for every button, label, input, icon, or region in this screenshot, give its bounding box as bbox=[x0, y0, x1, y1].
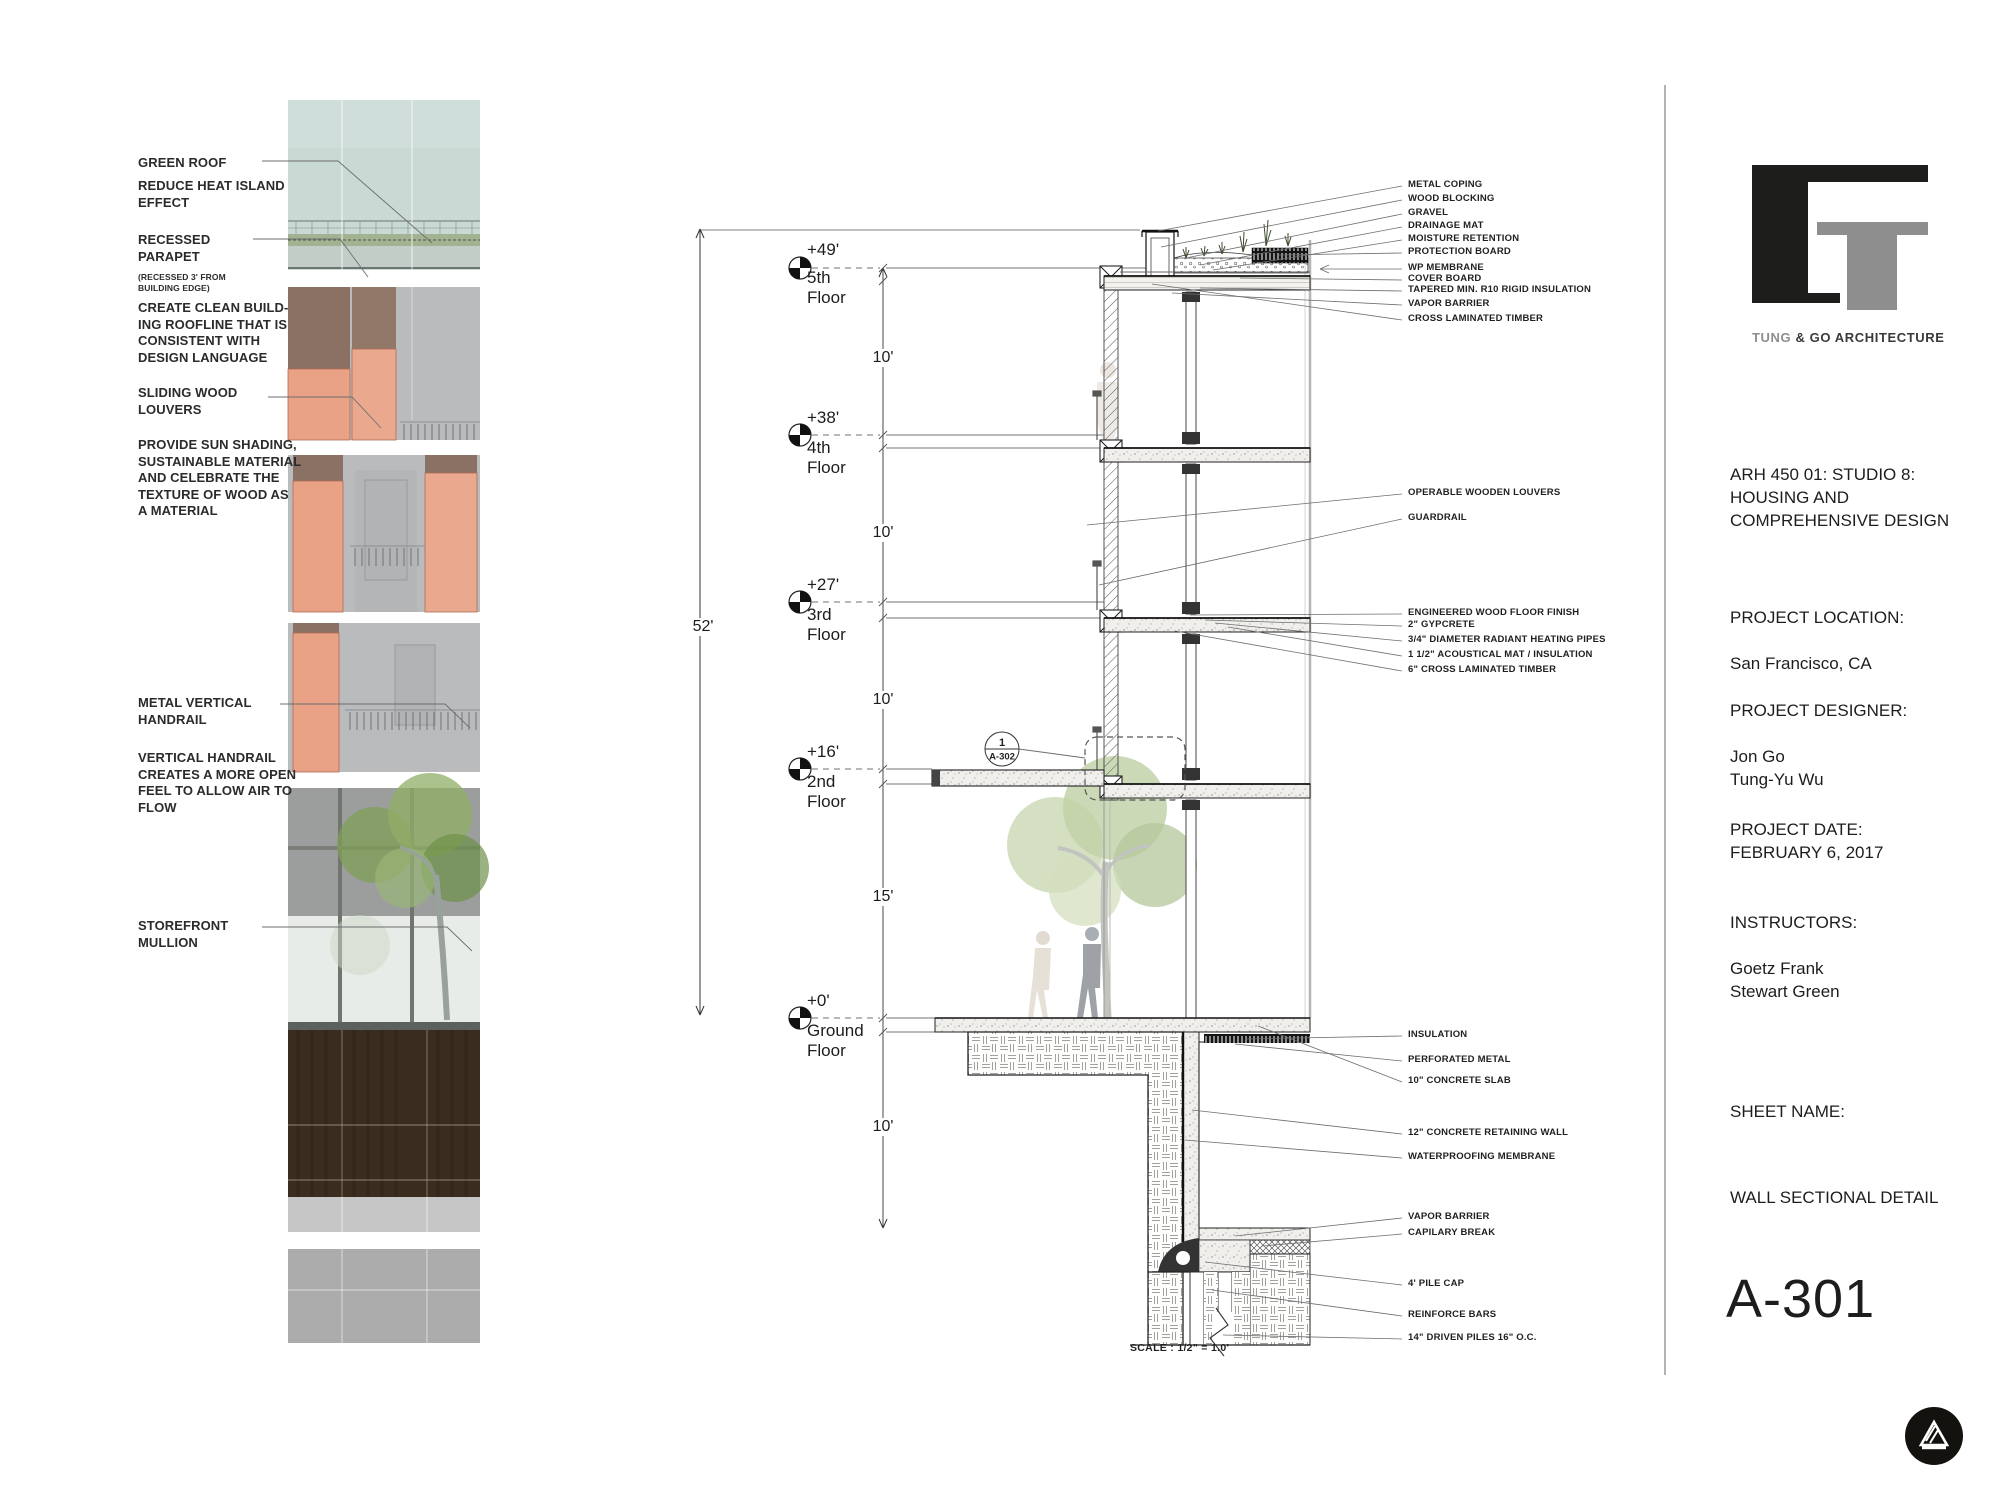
level-elev-4th: +38' bbox=[807, 408, 839, 428]
callout-vapor-barrier-roof: VAPOR BARRIER bbox=[1408, 298, 1490, 309]
earth-mass bbox=[968, 1032, 1183, 1345]
level-name-ground: Ground Floor bbox=[807, 1021, 864, 1061]
callout-protection-board: PROTECTION BOARD bbox=[1408, 246, 1511, 257]
dimension-lines bbox=[696, 229, 1146, 1228]
level-elev-3rd: +27' bbox=[807, 575, 839, 595]
firm-name: TUNG & GO ARCHITECTURE bbox=[1752, 330, 1945, 345]
callout-retaining-wall: 12" CONCRETE RETAINING WALL bbox=[1408, 1127, 1568, 1138]
strip-band-upper-facade bbox=[288, 287, 480, 440]
sheet-name-value: WALL SECTIONAL DETAIL bbox=[1730, 1186, 1938, 1209]
level-elev-2nd: +16' bbox=[807, 742, 839, 762]
callout-wp-membrane: WP MEMBRANE bbox=[1408, 262, 1484, 273]
note-sliding-louvers: SLIDING WOOD LOUVERS bbox=[138, 385, 310, 418]
note-heat-island: REDUCE HEAT ISLAND EFFECT bbox=[138, 178, 310, 211]
note-sun-shading: PROVIDE SUN SHADING, SUSTAINABLE MATERIA… bbox=[138, 437, 310, 520]
callout-waterproofing: WATERPROOFING MEMBRANE bbox=[1408, 1151, 1555, 1162]
callout-moisture-retention: MOISTURE RETENTION bbox=[1408, 233, 1519, 244]
level-name-2nd: 2nd Floor bbox=[807, 772, 846, 812]
callout-metal-coping: METAL COPING bbox=[1408, 179, 1482, 190]
callout-capillary-break: CAPILARY BREAK bbox=[1408, 1227, 1495, 1238]
logo-gray-t-stem bbox=[1847, 235, 1897, 310]
callout-driven-piles: 14" DRIVEN PILES 16" O.C. bbox=[1408, 1332, 1537, 1343]
note-recessed-parapet: RECESSED PARAPET bbox=[138, 232, 310, 265]
callout-wood-blocking: WOOD BLOCKING bbox=[1408, 193, 1495, 204]
callout-gypcrete: 2" GYPCRETE bbox=[1408, 619, 1475, 630]
strip-band-dark-wood bbox=[288, 1030, 480, 1197]
interior-columns bbox=[1182, 292, 1200, 1018]
note-green-roof: GREEN ROOF bbox=[138, 155, 310, 172]
note-clean-roofline: CREATE CLEAN BUILD- ING ROOFLINE THAT IS… bbox=[138, 300, 310, 366]
scale-note: SCALE : 1/2" = 1.0' bbox=[1130, 1342, 1229, 1354]
level-name-5th: 5th Floor bbox=[807, 268, 846, 308]
callout-radiant-pipes: 3/4" DIAMETER RADIANT HEATING PIPES bbox=[1408, 634, 1606, 645]
callout-gravel: GRAVEL bbox=[1408, 207, 1448, 218]
logo-gray-t-bar bbox=[1817, 222, 1928, 235]
callout-reinforce-bars: REINFORCE BARS bbox=[1408, 1309, 1496, 1320]
retaining-wall bbox=[1183, 1032, 1199, 1272]
level-elev-ground: +0' bbox=[807, 991, 830, 1011]
sheet-name-label: SHEET NAME: bbox=[1730, 1100, 1845, 1123]
project-location-label: PROJECT LOCATION: bbox=[1730, 606, 1904, 629]
dim-story-3: 10' bbox=[869, 691, 898, 709]
dim-below-grade: 10' bbox=[869, 1118, 898, 1136]
level-elev-5th: +49' bbox=[807, 240, 839, 260]
callout-insulation: INSULATION bbox=[1408, 1029, 1467, 1040]
detail-bubble-number: 1 bbox=[999, 737, 1005, 749]
level-name-4th: 4th Floor bbox=[807, 438, 846, 478]
callout-operable-louvers: OPERABLE WOODEN LOUVERS bbox=[1408, 487, 1560, 498]
seal-triangle-icon bbox=[1914, 1416, 1954, 1456]
callout-clt-floor: 6" CROSS LAMINATED TIMBER bbox=[1408, 664, 1556, 675]
project-date-value: FEBRUARY 6, 2017 bbox=[1730, 841, 1883, 864]
note-vertical-handrail: VERTICAL HANDRAIL CREATES A MORE OPEN FE… bbox=[138, 750, 310, 816]
strip-band-mid-facade-a bbox=[288, 455, 480, 612]
exterior-wall bbox=[1104, 268, 1118, 800]
strip-band-storefront bbox=[288, 773, 489, 1030]
callout-cover-board: COVER BOARD bbox=[1408, 273, 1481, 284]
wall-section bbox=[932, 220, 1310, 1356]
detail-bubble-sheet: A-302 bbox=[989, 752, 1015, 763]
dim-story-4: 15' bbox=[869, 888, 898, 906]
note-metal-handrail: METAL VERTICAL HANDRAIL bbox=[138, 695, 310, 728]
strip-band-mid-facade-b bbox=[288, 623, 480, 772]
parapet bbox=[1142, 231, 1178, 276]
project-date-label: PROJECT DATE: bbox=[1730, 818, 1863, 841]
school-seal-icon bbox=[1905, 1407, 1963, 1465]
course-title: ARH 450 01: STUDIO 8: HOUSING AND COMPRE… bbox=[1730, 463, 1949, 532]
logo-black-bottom-bar bbox=[1752, 293, 1840, 303]
instructors-names: Goetz Frank Stewart Green bbox=[1730, 957, 1840, 1003]
firm-name-dark: & GO ARCHITECTURE bbox=[1791, 330, 1944, 345]
callout-perforated-metal: PERFORATED METAL bbox=[1408, 1054, 1511, 1065]
dim-story-2: 10' bbox=[869, 524, 898, 542]
sheet-number: A-301 bbox=[1726, 1272, 1875, 1326]
elevation-strip bbox=[288, 100, 489, 1343]
callout-vapor-barrier-fnd: VAPOR BARRIER bbox=[1408, 1211, 1490, 1222]
callout-drainage-mat: DRAINAGE MAT bbox=[1408, 220, 1484, 231]
callout-wood-floor-finish: ENGINEERED WOOD FLOOR FINISH bbox=[1408, 607, 1579, 618]
strip-band-base bbox=[288, 1197, 480, 1343]
callout-clt-roof: CROSS LAMINATED TIMBER bbox=[1408, 313, 1543, 324]
firm-name-gray: TUNG bbox=[1752, 330, 1791, 345]
foundation bbox=[935, 1018, 1310, 1356]
note-storefront-mullion: STOREFRONT MULLION bbox=[138, 918, 310, 951]
project-designers: Jon Go Tung-Yu Wu bbox=[1730, 745, 1824, 791]
project-location-value: San Francisco, CA bbox=[1730, 652, 1872, 675]
callout-acoustical-mat: 1 1/2" ACOUSTICAL MAT / INSULATION bbox=[1408, 649, 1593, 660]
level-name-3rd: 3rd Floor bbox=[807, 605, 846, 645]
callout-tapered-insulation: TAPERED MIN. R10 RIGID INSULATION bbox=[1408, 284, 1591, 295]
callout-concrete-slab: 10" CONCRETE SLAB bbox=[1408, 1075, 1511, 1086]
callout-guardrail: GUARDRAIL bbox=[1408, 512, 1467, 523]
dim-story-1: 10' bbox=[869, 349, 898, 367]
logo-black-stem bbox=[1752, 165, 1808, 303]
callout-pile-cap: 4' PILE CAP bbox=[1408, 1278, 1464, 1289]
capillary-break bbox=[1250, 1240, 1310, 1254]
instructors-label: INSTRUCTORS: bbox=[1730, 911, 1857, 934]
project-designer-label: PROJECT DESIGNER: bbox=[1730, 699, 1907, 722]
drawing-sheet: GREEN ROOF REDUCE HEAT ISLAND EFFECT REC… bbox=[0, 0, 2000, 1500]
dim-overall: 52' bbox=[689, 618, 718, 636]
note-recessed-detail: (RECESSED 3' FROM BUILDING EDGE) bbox=[138, 272, 310, 293]
strip-band-green-roof bbox=[288, 100, 480, 270]
